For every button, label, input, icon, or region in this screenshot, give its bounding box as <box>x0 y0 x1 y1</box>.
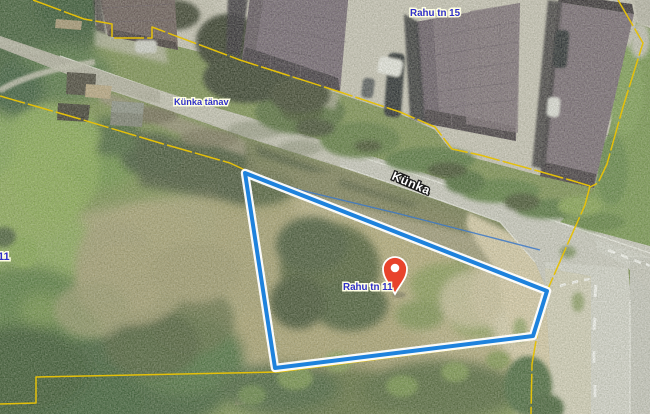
svg-text:Rahu tn 11: Rahu tn 11 <box>343 282 393 293</box>
svg-text:Künka tänav: Künka tänav <box>174 97 230 107</box>
svg-text:Rahu tn 15: Rahu tn 15 <box>410 8 461 19</box>
svg-text:11: 11 <box>0 251 10 263</box>
